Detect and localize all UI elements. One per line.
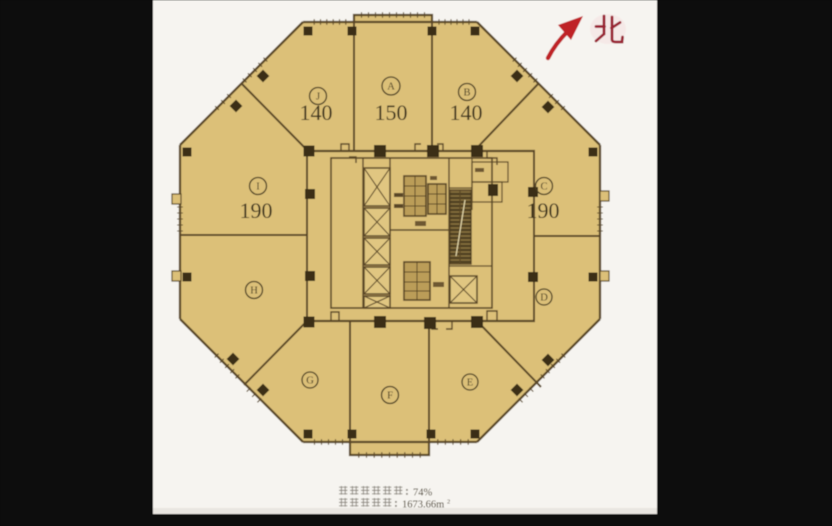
svg-text:B: B: [463, 88, 470, 99]
svg-text:D: D: [540, 293, 548, 304]
svg-text:2: 2: [447, 499, 450, 506]
svg-text:C: C: [540, 182, 547, 193]
svg-text:74%: 74%: [413, 488, 433, 499]
svg-text:190: 190: [527, 198, 560, 223]
svg-text:E: E: [467, 378, 473, 389]
svg-text:A: A: [387, 82, 395, 93]
svg-text:140: 140: [450, 100, 483, 125]
svg-text:G: G: [306, 376, 314, 387]
svg-text:140: 140: [300, 100, 333, 125]
svg-text:H: H: [250, 286, 258, 297]
svg-text:1673.66m: 1673.66m: [402, 500, 444, 511]
svg-text:150: 150: [375, 100, 408, 125]
svg-text:F: F: [387, 391, 393, 402]
svg-text:190: 190: [240, 198, 273, 223]
svg-text:I: I: [256, 182, 260, 193]
